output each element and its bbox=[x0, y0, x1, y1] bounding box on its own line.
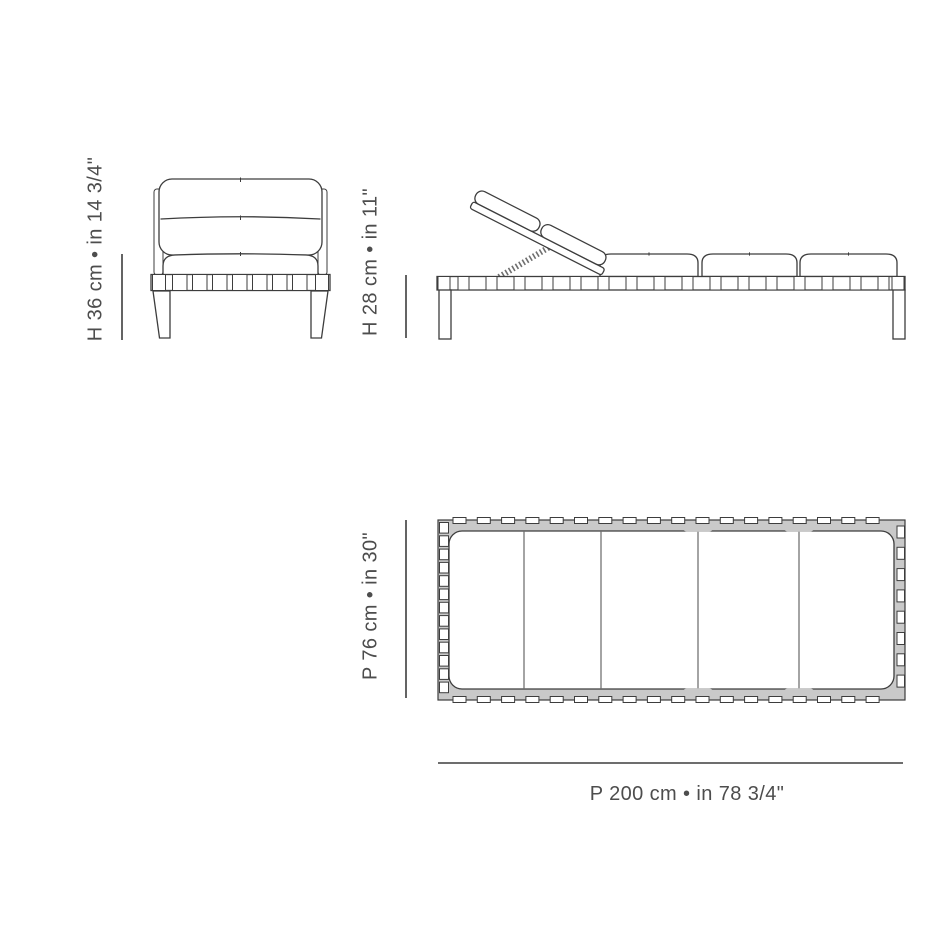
webbing-strap bbox=[654, 277, 665, 291]
webbing-strap bbox=[273, 275, 288, 291]
webbing-dash bbox=[866, 518, 879, 524]
webbing-dash bbox=[842, 518, 855, 524]
webbing-dash bbox=[647, 697, 660, 703]
webbing-dash bbox=[897, 569, 905, 581]
webbing-dash bbox=[696, 518, 709, 524]
webbing-dash bbox=[672, 518, 685, 524]
webbing-strap bbox=[738, 277, 749, 291]
plan-length-label: P 200 cm • in 78 3/4" bbox=[590, 783, 784, 805]
webbing-rung bbox=[440, 536, 449, 547]
top-view: P 76 cm • in 30" P 200 cm • in 78 3/4" bbox=[360, 518, 906, 806]
webbing-rung bbox=[440, 549, 449, 560]
webbing-dash bbox=[818, 518, 831, 524]
webbing-dash bbox=[599, 697, 612, 703]
webbing-strap bbox=[486, 277, 497, 291]
webbing-strap bbox=[542, 277, 553, 291]
webbing-strap bbox=[766, 277, 777, 291]
plan-mattress bbox=[449, 531, 894, 689]
plan-depth-label: P 76 cm • in 30" bbox=[360, 532, 382, 680]
webbing-strap bbox=[626, 277, 637, 291]
backrest-assembly bbox=[469, 189, 611, 276]
plan-join-shade bbox=[683, 525, 713, 532]
dimension-drawing-canvas: H 36 cm • in 14 3/4" H 28 cm • in 11" bbox=[0, 0, 950, 950]
backrest-frame-bar bbox=[470, 201, 605, 275]
webbing-dash bbox=[599, 518, 612, 524]
webbing-dash bbox=[769, 518, 782, 524]
side-rail-endcap-left bbox=[438, 277, 450, 291]
webbing-strap bbox=[682, 277, 693, 291]
webbing-rung bbox=[440, 642, 449, 653]
webbing-dash bbox=[477, 697, 490, 703]
webbing-dash bbox=[502, 518, 515, 524]
webbing-rung bbox=[440, 629, 449, 640]
front-seat-cushion bbox=[163, 254, 318, 275]
webbing-dash bbox=[842, 697, 855, 703]
webbing-dash bbox=[696, 697, 709, 703]
webbing-dash bbox=[477, 518, 490, 524]
webbing-dash bbox=[526, 518, 539, 524]
side-seat-cushion-3 bbox=[800, 254, 897, 277]
webbing-rung bbox=[440, 669, 449, 680]
webbing-dash bbox=[550, 697, 563, 703]
webbing-dash bbox=[575, 697, 588, 703]
webbing-dash bbox=[502, 697, 515, 703]
webbing-strap bbox=[570, 277, 581, 291]
webbing-dash bbox=[623, 518, 636, 524]
side-height-label: H 28 cm • in 11" bbox=[360, 188, 382, 336]
webbing-strap bbox=[822, 277, 833, 291]
webbing-strap bbox=[878, 277, 889, 291]
webbing-dash bbox=[647, 518, 660, 524]
webbing-dash bbox=[793, 697, 806, 703]
webbing-strap bbox=[253, 275, 268, 291]
webbing-dash bbox=[453, 518, 466, 524]
plan-join-shade bbox=[784, 689, 814, 696]
webbing-dash bbox=[897, 675, 905, 687]
webbing-strap bbox=[233, 275, 248, 291]
webbing-strap bbox=[173, 275, 188, 291]
webbing-strap bbox=[710, 277, 721, 291]
webbing-strap bbox=[193, 275, 208, 291]
plan-join-shade bbox=[784, 525, 814, 532]
webbing-strap bbox=[458, 277, 469, 291]
webbing-rung bbox=[440, 576, 449, 587]
webbing-dash bbox=[897, 654, 905, 666]
front-leg-left bbox=[153, 291, 170, 338]
side-leg-right bbox=[893, 290, 905, 339]
side-seat-cushion-1 bbox=[600, 254, 698, 277]
front-rail-endcap-right bbox=[316, 275, 329, 291]
side-rail bbox=[437, 277, 905, 291]
front-view: H 36 cm • in 14 3/4" bbox=[85, 157, 331, 341]
webbing-dash bbox=[623, 697, 636, 703]
webbing-dash bbox=[745, 518, 758, 524]
webbing-dash bbox=[720, 518, 733, 524]
webbing-dash bbox=[818, 697, 831, 703]
webbing-dash bbox=[720, 697, 733, 703]
webbing-rung bbox=[440, 562, 449, 573]
webbing-rung bbox=[440, 523, 449, 534]
side-view: H 28 cm • in 11" bbox=[360, 188, 906, 339]
webbing-dash bbox=[897, 547, 905, 559]
webbing-dash bbox=[769, 697, 782, 703]
webbing-dash bbox=[575, 518, 588, 524]
front-leg-right bbox=[311, 291, 328, 338]
webbing-rung bbox=[440, 682, 449, 693]
front-height-label: H 36 cm • in 14 3/4" bbox=[85, 157, 107, 341]
webbing-dash bbox=[745, 697, 758, 703]
webbing-rung bbox=[440, 616, 449, 627]
webbing-dash bbox=[897, 633, 905, 645]
webbing-dash bbox=[793, 518, 806, 524]
webbing-strap bbox=[598, 277, 609, 291]
webbing-dash bbox=[897, 526, 905, 538]
plan-join-shade bbox=[683, 689, 713, 696]
webbing-rung bbox=[440, 656, 449, 667]
webbing-strap bbox=[213, 275, 228, 291]
backrest-ratchet-strut bbox=[499, 246, 552, 278]
webbing-rung bbox=[440, 589, 449, 600]
side-seat-cushion-2 bbox=[702, 254, 797, 277]
front-rail-endcap-left bbox=[153, 275, 166, 291]
webbing-dash bbox=[526, 697, 539, 703]
front-webbing bbox=[173, 275, 308, 291]
webbing-strap bbox=[293, 275, 308, 291]
webbing-dash bbox=[672, 697, 685, 703]
webbing-strap bbox=[850, 277, 861, 291]
webbing-strap bbox=[514, 277, 525, 291]
webbing-strap bbox=[794, 277, 805, 291]
lounger-dimension-diagram: H 36 cm • in 14 3/4" H 28 cm • in 11" bbox=[0, 0, 950, 950]
webbing-dash bbox=[897, 590, 905, 602]
webbing-dash bbox=[897, 611, 905, 623]
webbing-dash bbox=[453, 697, 466, 703]
webbing-dash bbox=[550, 518, 563, 524]
side-rail-endcap-right bbox=[892, 277, 904, 291]
webbing-dash bbox=[866, 697, 879, 703]
webbing-rung bbox=[440, 602, 449, 613]
side-leg-left bbox=[439, 290, 451, 339]
